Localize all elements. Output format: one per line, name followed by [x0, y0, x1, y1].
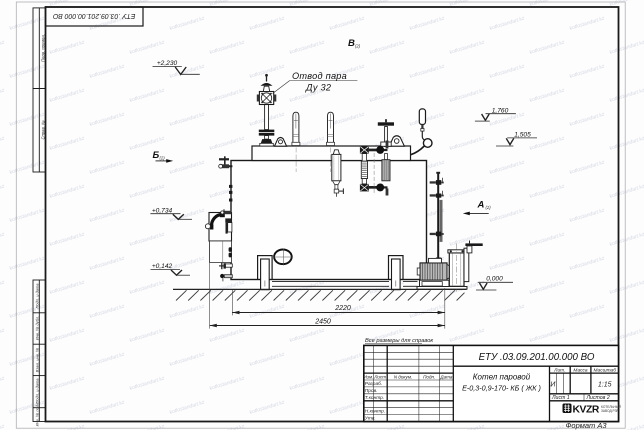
svg-text:Подп. и дата: Подп. и дата [34, 283, 39, 309]
svg-text:+0,734: +0,734 [152, 207, 173, 214]
svg-text:Листов 2: Листов 2 [586, 395, 610, 401]
svg-text:Б: Б [153, 150, 160, 161]
svg-text:Подп. и дата: Подп. и дата [34, 378, 39, 404]
svg-text:Подп.: Подп. [423, 374, 435, 379]
svg-text:Дата: Дата [439, 374, 453, 379]
svg-text:Изм.: Изм. [364, 374, 374, 379]
svg-text:ЗАВОД РЗР: ЗАВОД РЗР [601, 409, 619, 413]
svg-text:Взам. инв. №: Взам. инв. № [34, 347, 39, 372]
svg-text:Масса: Масса [573, 367, 588, 373]
svg-text:Разраб.: Разраб. [365, 381, 382, 387]
svg-text:2450: 2450 [314, 318, 331, 325]
svg-text:Инв. № дубл.: Инв. № дубл. [34, 316, 39, 341]
svg-text:+2,230: +2,230 [157, 60, 178, 67]
svg-text:Справ. №: Справ. № [40, 120, 45, 139]
svg-text:Пров.: Пров. [365, 388, 378, 394]
svg-text:(2): (2) [355, 44, 361, 49]
svg-text:1:15: 1:15 [598, 381, 612, 388]
svg-text:0,000: 0,000 [486, 275, 503, 282]
svg-text:Утв.: Утв. [365, 416, 376, 422]
svg-text:+0,142: +0,142 [152, 263, 173, 270]
svg-text:Перв. примен.: Перв. примен. [40, 34, 45, 62]
svg-text:А: А [477, 200, 485, 211]
svg-text:Лист 1: Лист 1 [551, 395, 570, 401]
svg-text:Инв. № подл.: Инв. № подл. [34, 402, 39, 427]
svg-text:Котел паровой: Котел паровой [473, 373, 531, 382]
svg-text:Т.контр.: Т.контр. [365, 395, 384, 401]
svg-text:Е-0,3-0,9-170- КБ ( ЖК ): Е-0,3-0,9-170- КБ ( ЖК ) [462, 384, 541, 393]
svg-text:Формат А3: Формат А3 [565, 421, 607, 430]
svg-text:Масштаб: Масштаб [593, 367, 616, 373]
svg-text:В: В [348, 38, 355, 49]
svg-text:2220: 2220 [334, 305, 351, 312]
svg-text:Н.контр.: Н.контр. [365, 409, 385, 415]
svg-text:(2): (2) [486, 205, 492, 210]
svg-text:Все размеры для справок: Все размеры для справок [365, 338, 433, 344]
svg-text:1,760: 1,760 [492, 107, 509, 114]
svg-text:N докум.: N докум. [394, 374, 413, 379]
svg-text:Лит.: Лит. [553, 367, 565, 373]
svg-text:Отвод пара: Отвод пара [292, 71, 347, 81]
svg-text:Лист: Лист [373, 374, 386, 379]
svg-text:Ду 32: Ду 32 [305, 82, 331, 92]
svg-text:ЕТУ .03.09.201.00.000 ВО: ЕТУ .03.09.201.00.000 ВО [479, 352, 595, 363]
svg-text:ЕТУ .03.09.201.00.000 ВО: ЕТУ .03.09.201.00.000 ВО [52, 12, 135, 19]
svg-text:(2): (2) [160, 156, 166, 161]
svg-text:KVZR: KVZR [573, 405, 600, 416]
